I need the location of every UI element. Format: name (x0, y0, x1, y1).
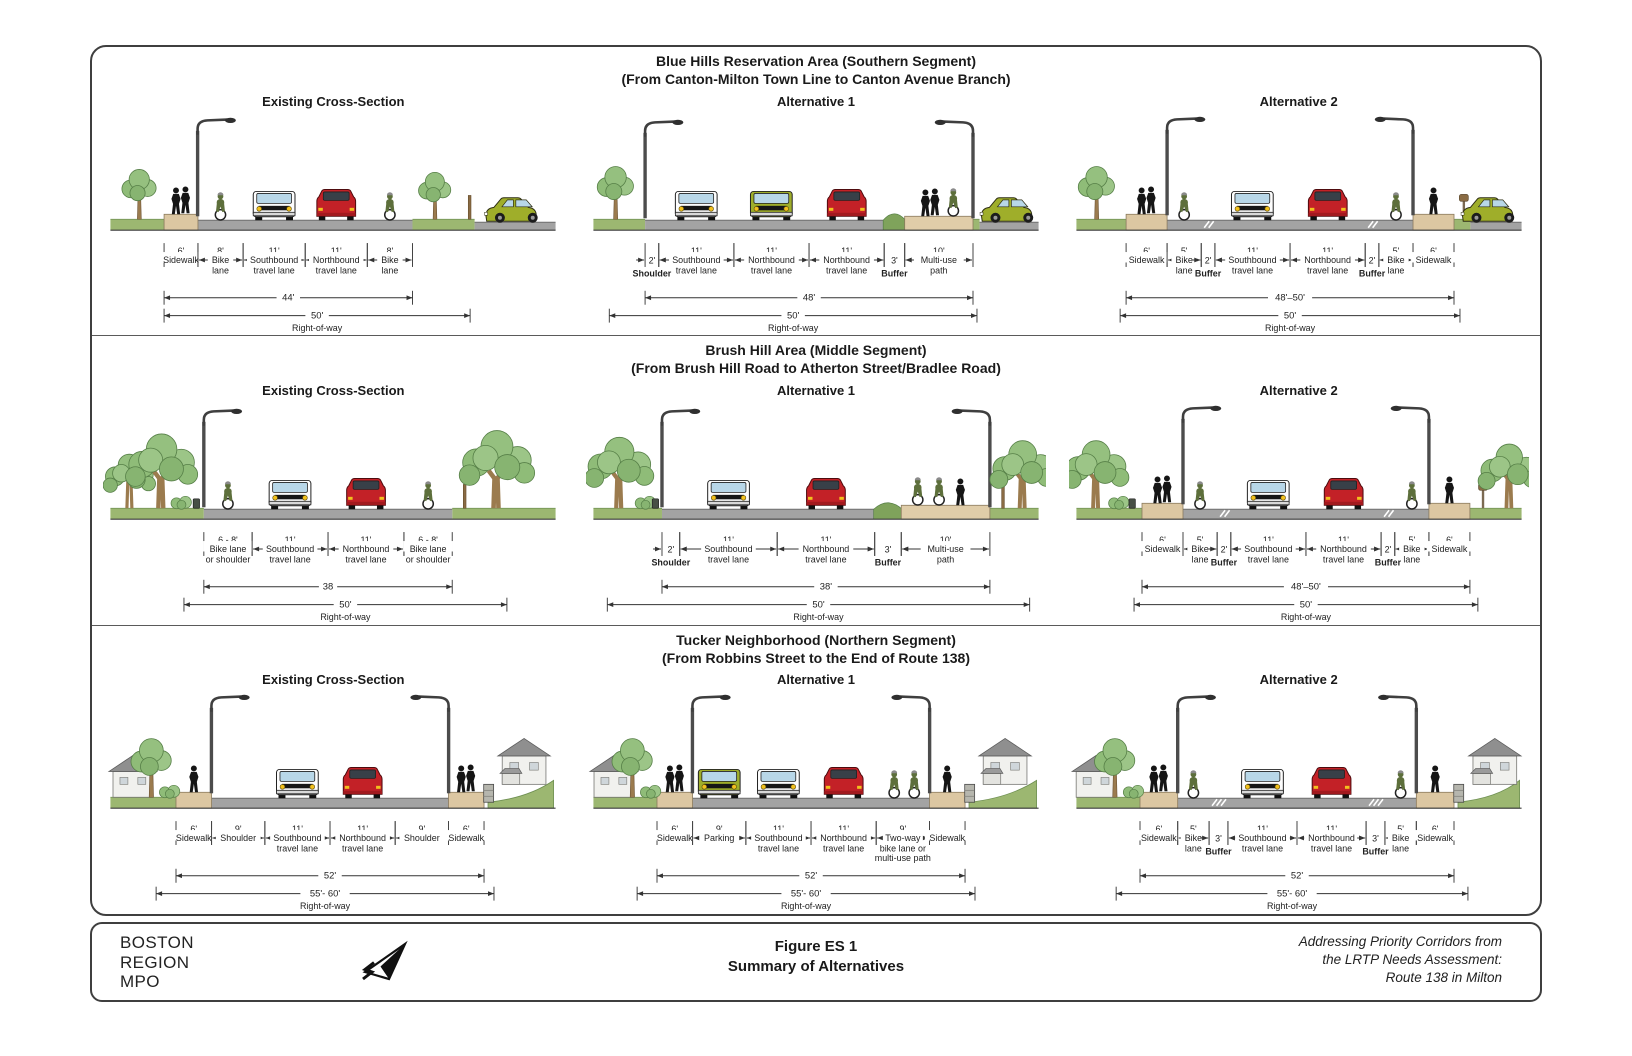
buffer-planting (874, 503, 903, 519)
panel-brush-hill: Brush Hill Area (Middle Segment) (From B… (92, 335, 1540, 624)
scene-objects (1078, 117, 1514, 223)
svg-text:Sidewalk: Sidewalk (657, 833, 693, 843)
svg-text:Right-of-way: Right-of-way (300, 902, 351, 912)
side-road (980, 222, 1039, 230)
van-front-icon (675, 191, 717, 220)
svg-text:Bike lane: Bike lane (410, 544, 447, 554)
svg-text:Southbound: Southbound (1244, 544, 1292, 554)
cyclist-icon (1395, 771, 1405, 799)
title-block: BOSTON REGION MPO Figure ES 1 Summary of… (90, 922, 1542, 1002)
car-front-icon (750, 191, 792, 220)
car-rear-icon (827, 189, 866, 220)
svg-text:Northbound: Northbound (803, 544, 850, 554)
pedestrian-icon (665, 766, 674, 793)
pedestrian-icon (466, 765, 475, 792)
svg-text:Bike: Bike (1392, 833, 1409, 843)
scene-objects (590, 695, 1031, 802)
pedestrian-icon (1430, 766, 1439, 793)
svg-text:38: 38 (323, 581, 333, 592)
car-rear-icon (1312, 768, 1351, 799)
svg-text:Two-way: Two-way (885, 833, 921, 843)
sidewalk (1140, 793, 1178, 809)
dimension-annotations: 6 - 8'Bike laneor shoulder11'Southboundt… (184, 532, 507, 622)
svg-text:Bike: Bike (382, 255, 399, 265)
car-rear-icon (1324, 479, 1363, 510)
pedestrian-icon (930, 188, 939, 215)
svg-text:Sidewalk: Sidewalk (176, 833, 212, 843)
svg-text:Bike: Bike (212, 255, 229, 265)
svg-text:Buffer: Buffer (1195, 268, 1222, 278)
car-rear-icon (807, 479, 846, 510)
car-rear-icon (1308, 189, 1347, 220)
svg-text:50': 50' (1284, 309, 1296, 320)
svg-text:Southbound: Southbound (250, 255, 298, 265)
cross-section-alternative-1: Alternative 1 (575, 89, 1058, 336)
svg-text:Shoulder: Shoulder (633, 268, 672, 278)
pedestrian-icon (1146, 186, 1155, 213)
svg-text:50': 50' (1299, 599, 1311, 610)
cross-section-alternative-1: Alternative 1 (575, 378, 1058, 625)
svg-text:travel lane: travel lane (708, 555, 749, 565)
bush-icon (1108, 496, 1128, 509)
svg-text:lane: lane (212, 265, 229, 275)
svg-text:48': 48' (803, 292, 815, 303)
panel-title: Brush Hill Area (Middle Segment) (92, 342, 1540, 360)
porch-icon (981, 769, 1003, 785)
car-side-icon (1461, 198, 1514, 223)
cross-section-existing-cross-section: Existing Cross-Section (92, 378, 575, 625)
svg-text:50': 50' (812, 599, 824, 610)
street-light-icon (196, 118, 236, 216)
svg-text:Right-of-way: Right-of-way (1265, 323, 1316, 333)
svg-text:Northbound: Northbound (748, 255, 795, 265)
large-tree-icon (1478, 444, 1529, 508)
svg-text:Right-of-way: Right-of-way (1281, 612, 1332, 622)
cyclist-icon (1390, 192, 1400, 220)
stone-wall-icon (484, 785, 494, 803)
svg-text:travel lane: travel lane (277, 844, 318, 854)
svg-text:Northbound: Northbound (1308, 833, 1355, 843)
svg-text:Right-of-way: Right-of-way (768, 323, 819, 333)
svg-text:Buffer: Buffer (875, 558, 902, 568)
pedestrian-icon (1149, 766, 1158, 793)
cross-section-existing-cross-section: Existing Cross-Section (92, 89, 575, 336)
cyclist-icon (223, 481, 233, 509)
svg-text:lane: lane (1387, 265, 1404, 275)
dimension-annotations: 2'Shoulder11'Southboundtravel lane11'Nor… (607, 532, 1029, 622)
svg-text:3': 3' (891, 255, 898, 265)
svg-text:Right-of-way: Right-of-way (793, 612, 844, 622)
roadway (645, 220, 905, 230)
svg-text:travel lane: travel lane (342, 844, 383, 854)
street-light-icon (202, 409, 242, 507)
street-light-icon (411, 695, 451, 793)
sidewalk (657, 793, 693, 809)
svg-text:Shoulder: Shoulder (651, 558, 690, 568)
cross-section-diagram: 2'Shoulder11'Southboundtravel lane11'Nor… (586, 392, 1046, 625)
svg-text:Bike: Bike (1403, 544, 1420, 554)
tree-icon (122, 169, 156, 219)
svg-text:or shoulder: or shoulder (206, 555, 251, 565)
panel-subtitle: (From Robbins Street to the End of Route… (92, 650, 1540, 668)
dimension-annotations: 6'Sidewalk9'Parking11'Southboundtravel l… (637, 822, 975, 912)
svg-text:travel lane: travel lane (1247, 555, 1288, 565)
panel-tucker: Tucker Neighborhood (Northern Segment) (… (92, 625, 1540, 914)
tree-icon (419, 172, 451, 219)
svg-text:2': 2' (1220, 545, 1227, 555)
svg-text:Northbound: Northbound (313, 255, 360, 265)
van-front-icon (1231, 191, 1273, 220)
svg-text:3': 3' (1372, 834, 1379, 844)
pedestrian-icon (956, 479, 965, 506)
sign-post-icon (464, 485, 467, 509)
ground (1076, 214, 1521, 230)
svg-text:3': 3' (885, 545, 892, 555)
side-road (475, 222, 556, 230)
side-road (1470, 222, 1521, 230)
pedestrian-icon (1162, 476, 1171, 503)
svg-text:55'- 60': 55'- 60' (1277, 888, 1308, 899)
sidewalk (1413, 214, 1454, 230)
pedestrian-icon (1429, 187, 1438, 214)
svg-text:travel lane: travel lane (316, 265, 357, 275)
svg-text:travel lane: travel lane (826, 265, 867, 275)
svg-text:Southbound: Southbound (274, 833, 322, 843)
study-credit: Addressing Priority Corridors from the L… (1299, 933, 1502, 986)
svg-text:travel lane: travel lane (823, 844, 864, 854)
svg-text:lane: lane (1191, 555, 1208, 565)
pedestrian-icon (190, 766, 199, 793)
svg-text:Bike: Bike (1175, 255, 1192, 265)
svg-text:Buffer: Buffer (1210, 558, 1237, 568)
svg-text:2': 2' (1368, 255, 1375, 265)
svg-text:Right-of-way: Right-of-way (292, 323, 343, 333)
svg-text:lane: lane (382, 265, 399, 275)
svg-text:or shoulder: or shoulder (406, 555, 451, 565)
svg-text:Bike: Bike (1191, 544, 1208, 554)
svg-text:travel lane: travel lane (1323, 555, 1364, 565)
svg-text:Right-of-way: Right-of-way (781, 902, 832, 912)
cyclist-icon (1188, 771, 1198, 799)
svg-text:multi-use path: multi-use path (875, 853, 931, 863)
panel-header: Blue Hills Reservation Area (Southern Se… (92, 47, 1540, 89)
sidewalk (164, 214, 198, 230)
sign-post-icon (469, 195, 472, 219)
svg-text:travel lane: travel lane (1307, 265, 1348, 275)
svg-text:Sidewalk: Sidewalk (1128, 255, 1164, 265)
porch-icon (1470, 769, 1492, 785)
svg-text:Bike: Bike (1387, 255, 1404, 265)
multi-use-path (901, 505, 990, 519)
cross-section-diagram: 6'Sidewalk9'Shoulder11'Southboundtravel … (103, 681, 563, 914)
svg-text:Southbound: Southbound (266, 544, 314, 554)
stone-wall-icon (1453, 785, 1463, 803)
dimension-annotations: 2'Shoulder11'Southboundtravel lane11'Nor… (609, 243, 977, 333)
scene-objects (586, 409, 1046, 509)
cross-section-alternative-2: Alternative 2 (1057, 89, 1540, 336)
cyclist-icon (423, 481, 433, 509)
roadway (204, 509, 452, 519)
sidewalk (449, 793, 485, 809)
trash-can-icon (1129, 499, 1135, 508)
car-rear-icon (344, 768, 383, 799)
svg-text:Sidewalk: Sidewalk (1431, 544, 1467, 554)
panel-blue-hills: Blue Hills Reservation Area (Southern Se… (92, 47, 1540, 335)
cross-section-existing-cross-section: Existing Cross-Section (92, 667, 575, 914)
ground (1076, 503, 1521, 519)
street-light-icon (660, 409, 700, 507)
svg-text:52': 52' (324, 870, 336, 881)
cyclist-icon (385, 192, 395, 220)
svg-text:path: path (937, 555, 954, 565)
bush-icon (1123, 786, 1143, 799)
cross-section-diagram: 6'Sidewalk5'Bikelane3'Buffer11'Southboun… (1069, 681, 1529, 914)
svg-text:Southbound: Southbound (672, 255, 720, 265)
svg-text:2': 2' (668, 545, 675, 555)
dimension-annotations: 6'Sidewalk5'Bikelane2'Buffer11'Southboun… (1120, 243, 1460, 333)
svg-text:48'–50': 48'–50' (1275, 292, 1305, 303)
svg-text:Southbound: Southbound (1228, 255, 1276, 265)
car-rear-icon (824, 768, 863, 799)
svg-text:55'- 60': 55'- 60' (791, 888, 822, 899)
panel-header: Brush Hill Area (Middle Segment) (From B… (92, 336, 1540, 378)
van-front-icon (1247, 481, 1289, 510)
bush-icon (171, 496, 191, 509)
pedestrian-icon (172, 187, 181, 214)
svg-text:Northbound: Northbound (343, 544, 390, 554)
ground (111, 508, 556, 519)
svg-text:Parking: Parking (704, 833, 734, 843)
svg-text:2': 2' (649, 255, 656, 265)
panel-header: Tucker Neighborhood (Northern Segment) (… (92, 626, 1540, 668)
svg-text:travel lane: travel lane (1242, 844, 1283, 854)
svg-text:38': 38' (820, 581, 832, 592)
cross-sections-frame: Blue Hills Reservation Area (Southern Se… (90, 45, 1542, 916)
svg-text:lane: lane (1175, 265, 1192, 275)
svg-text:Shoulder: Shoulder (221, 833, 257, 843)
svg-text:50': 50' (311, 309, 323, 320)
svg-text:Sidewalk: Sidewalk (449, 833, 485, 843)
tree-icon (597, 166, 633, 219)
pedestrian-icon (1137, 187, 1146, 214)
svg-text:Buffer: Buffer (881, 268, 908, 278)
pedestrian-icon (457, 766, 466, 793)
sidewalk (1142, 503, 1183, 519)
svg-text:Northbound: Northbound (1304, 255, 1351, 265)
sidewalk (1126, 214, 1167, 230)
cross-section-diagram: 6'Sidewalk9'Parking11'Southboundtravel l… (586, 681, 1046, 914)
dimension-annotations: 6'Sidewalk9'Shoulder11'Southboundtravel … (156, 822, 494, 912)
van-front-icon (708, 481, 750, 510)
van-front-icon (277, 770, 319, 799)
svg-text:travel lane: travel lane (270, 555, 311, 565)
sidewalk (1416, 793, 1454, 809)
trash-can-icon (194, 499, 200, 508)
street-light-icon (210, 695, 250, 793)
svg-text:3': 3' (1215, 834, 1222, 844)
svg-text:Right-of-way: Right-of-way (1267, 902, 1318, 912)
van-front-icon (269, 481, 311, 510)
scene-objects (122, 118, 538, 223)
panel-sections: Existing Cross-Section (92, 89, 1540, 336)
svg-text:Multi-use: Multi-use (927, 544, 963, 554)
roadway (212, 799, 449, 809)
cyclist-icon (948, 188, 958, 216)
svg-text:Buffer: Buffer (1362, 847, 1389, 857)
cross-section-diagram: 6'Sidewalk8'Bikelane11'Southboundtravel … (103, 103, 563, 336)
cross-section-diagram: 2'Shoulder11'Southboundtravel lane11'Nor… (586, 103, 1046, 336)
svg-text:travel lane: travel lane (676, 265, 717, 275)
svg-text:travel lane: travel lane (1311, 844, 1352, 854)
porch-icon (500, 769, 522, 785)
pedestrian-icon (675, 765, 684, 792)
van-front-icon (758, 770, 800, 799)
svg-text:travel lane: travel lane (346, 555, 387, 565)
svg-text:Northbound: Northbound (823, 255, 870, 265)
svg-text:travel lane: travel lane (254, 265, 295, 275)
svg-text:52': 52' (1291, 870, 1303, 881)
svg-text:lane: lane (1392, 844, 1409, 854)
svg-text:path: path (930, 265, 947, 275)
svg-text:Southbound: Southbound (1238, 833, 1286, 843)
roadway (198, 220, 413, 230)
svg-text:2': 2' (1204, 255, 1211, 265)
trash-can-icon (652, 499, 658, 508)
roadway (1167, 220, 1413, 230)
cross-section-alternative-2: Alternative 2 (1057, 667, 1540, 914)
svg-text:44': 44' (282, 292, 294, 303)
cyclist-icon (934, 477, 944, 505)
cyclist-icon (889, 771, 899, 799)
svg-text:Northbound: Northbound (340, 833, 387, 843)
cyclist-icon (909, 771, 919, 799)
pedestrian-icon (921, 189, 930, 216)
cross-section-diagram: 6'Sidewalk5'Bikelane2'Buffer11'Southboun… (1069, 103, 1529, 336)
svg-text:Sidewalk: Sidewalk (1144, 544, 1180, 554)
cross-section-diagram: 6 - 8'Bike laneor shoulder11'Southboundt… (103, 392, 563, 625)
tree-icon (1078, 166, 1114, 219)
cyclist-icon (913, 477, 923, 505)
scene-objects (597, 120, 1033, 223)
large-tree-icon (586, 437, 654, 508)
svg-text:Sidewalk: Sidewalk (1141, 833, 1177, 843)
scene-objects (109, 695, 550, 802)
cyclist-icon (216, 192, 226, 220)
roadway (662, 509, 901, 519)
svg-text:Buffer: Buffer (1359, 268, 1386, 278)
van-front-icon (254, 191, 296, 220)
scene-objects (1072, 695, 1521, 802)
dimension-annotations: 6'Sidewalk5'Bikelane3'Buffer11'Southboun… (1116, 822, 1468, 912)
svg-text:Sidewalk: Sidewalk (1415, 255, 1451, 265)
svg-text:Bike: Bike (1184, 833, 1201, 843)
pedestrian-icon (1158, 765, 1167, 792)
dimension-annotations: 6'Sidewalk8'Bikelane11'Southboundtravel … (159, 243, 471, 333)
svg-text:lane: lane (1185, 844, 1202, 854)
panel-sections: Existing Cross-Section (92, 378, 1540, 625)
pedestrian-icon (1153, 477, 1162, 504)
panel-subtitle: (From Brush Hill Road to Atherton Street… (92, 360, 1540, 378)
cross-section-diagram: 6'Sidewalk5'Bikelane2'Buffer11'Southboun… (1069, 392, 1529, 625)
car-rear-icon (347, 479, 386, 510)
multi-use-path (905, 216, 973, 230)
svg-text:2': 2' (1384, 545, 1391, 555)
cross-section-alternative-2: Alternative 2 (1057, 378, 1540, 625)
svg-text:Buffer: Buffer (1205, 847, 1232, 857)
svg-text:Southbound: Southbound (754, 833, 802, 843)
svg-text:travel lane: travel lane (758, 844, 799, 854)
roadway (1183, 509, 1429, 519)
svg-text:50': 50' (340, 599, 352, 610)
svg-text:Sidewalk: Sidewalk (163, 255, 199, 265)
panel-title: Blue Hills Reservation Area (Southern Se… (92, 53, 1540, 71)
svg-text:55'- 60': 55'- 60' (310, 888, 341, 899)
sidewalk (1429, 503, 1470, 519)
panel-subtitle: (From Canton-Milton Town Line to Canton … (92, 71, 1540, 89)
svg-text:Northbound: Northbound (820, 833, 867, 843)
svg-text:48'–50': 48'–50' (1291, 581, 1321, 592)
cyclist-icon (1195, 481, 1205, 509)
car-side-icon (485, 198, 538, 223)
stone-wall-icon (965, 785, 975, 803)
svg-text:travel lane: travel lane (751, 265, 792, 275)
roadway (693, 799, 930, 809)
scene-objects (103, 409, 535, 509)
panel-sections: Existing Cross-Section (92, 667, 1540, 914)
cross-section-alternative-1: Alternative 1 (575, 667, 1058, 914)
pedestrian-icon (181, 186, 190, 213)
scene-objects (1069, 406, 1529, 509)
svg-text:50': 50' (787, 309, 799, 320)
large-tree-icon (990, 441, 1046, 509)
pedestrian-icon (943, 766, 952, 793)
svg-text:Right-of-way: Right-of-way (321, 612, 372, 622)
car-front-icon (698, 770, 740, 799)
cyclist-icon (1406, 481, 1416, 509)
car-rear-icon (317, 189, 356, 220)
bush-icon (640, 786, 660, 799)
svg-text:Sidewalk: Sidewalk (929, 833, 965, 843)
svg-text:Shoulder: Shoulder (404, 833, 440, 843)
cyclist-icon (1179, 192, 1189, 220)
van-front-icon (1241, 770, 1283, 799)
sidewalk (176, 793, 212, 809)
svg-text:travel lane: travel lane (805, 555, 846, 565)
car-side-icon (980, 198, 1033, 223)
svg-text:Northbound: Northbound (1320, 544, 1367, 554)
svg-text:Southbound: Southbound (704, 544, 752, 554)
svg-text:Bike lane: Bike lane (210, 544, 247, 554)
figure-page: Blue Hills Reservation Area (Southern Se… (0, 0, 1632, 1056)
svg-text:Sidewalk: Sidewalk (1417, 833, 1453, 843)
svg-text:52': 52' (805, 870, 817, 881)
buffer-planting (883, 214, 905, 230)
svg-text:Multi-use: Multi-use (921, 255, 957, 265)
bush-icon (160, 786, 180, 799)
large-tree-icon (460, 431, 535, 509)
svg-text:travel lane: travel lane (1232, 265, 1273, 275)
pedestrian-icon (1445, 477, 1454, 504)
sidewalk (930, 793, 966, 809)
svg-text:Buffer: Buffer (1374, 558, 1401, 568)
panel-title: Tucker Neighborhood (Northern Segment) (92, 632, 1540, 650)
svg-text:lane: lane (1403, 555, 1420, 565)
dimension-annotations: 6'Sidewalk5'Bikelane2'Buffer11'Southboun… (1134, 532, 1478, 622)
